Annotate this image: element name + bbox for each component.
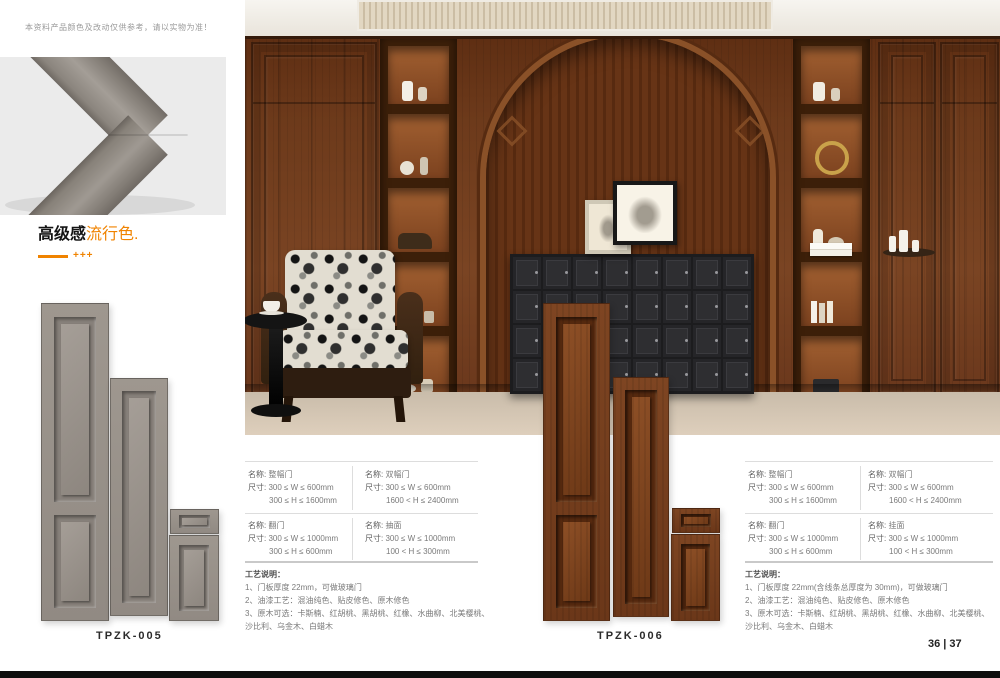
door-panel-center	[61, 522, 89, 601]
door-panel-center	[684, 517, 708, 524]
cabinet-door	[663, 291, 691, 323]
cabinet-door	[693, 257, 721, 289]
cabinet-door	[693, 359, 721, 391]
spec-name: 双幅门	[888, 470, 912, 479]
accent-underline: +++	[38, 252, 94, 260]
spec-cell: 名称: 双幅门 尺寸: 300 ≤ W ≤ 600mm 1600 < H ≤ 2…	[365, 468, 459, 507]
divider	[245, 461, 478, 462]
page-title: 高级感流行色.	[38, 226, 138, 244]
room-photo	[245, 0, 1000, 435]
gray-door-tall	[41, 303, 109, 621]
ceiling-slat-panel	[357, 0, 773, 31]
cabinet-door	[603, 257, 631, 289]
spec-cell: 名称: 翻门 尺寸: 300 ≤ W ≤ 1000mm 300 ≤ H ≤ 60…	[748, 519, 838, 558]
spec-size: 300 ≤ W ≤ 600mm	[268, 483, 333, 492]
process-note: 3、原木可选：卡斯楠、红胡桃、黑胡桃、红橡、水曲柳、北美樱桃、沙比利、乌金木、白…	[245, 607, 490, 633]
cabinet-door	[633, 325, 661, 357]
decor-book	[819, 303, 825, 323]
spec-name: 挂面	[888, 521, 904, 530]
armchair-seat-cushion	[278, 330, 408, 370]
process-note: 1、门板厚度 22mm，可做玻璃门	[245, 581, 490, 594]
corner-frame-render	[0, 57, 226, 215]
door-panel-center	[563, 522, 590, 601]
corner-detail-image	[0, 57, 226, 215]
divider	[745, 561, 993, 563]
divider	[352, 518, 353, 560]
cabinet-door	[513, 291, 541, 323]
shelf-opening	[388, 188, 449, 252]
spec-size: 300 ≤ H ≤ 600mm	[748, 545, 838, 558]
shelf-opening	[801, 262, 862, 326]
cabinet-door	[723, 257, 751, 289]
divider	[352, 466, 353, 510]
process-notes: 工艺说明： 1、门板厚度 22mm，可做玻璃门 2、油漆工艺：混油纯色、贴皮修色…	[245, 568, 490, 633]
decor-book	[811, 301, 817, 323]
process-notes-title: 工艺说明：	[245, 568, 490, 581]
decor-vase	[402, 81, 413, 101]
cabinet-door	[723, 359, 751, 391]
cabinet-door	[723, 291, 751, 323]
divider	[245, 513, 478, 514]
spec-cell: 名称: 双幅门 尺寸: 300 ≤ W ≤ 600mm 1600 < H ≤ 2…	[868, 468, 962, 507]
catalog-page: 本资料产品颜色及改动仅供参考，请以实物为准！ 高级	[0, 0, 1000, 678]
door-panel	[54, 317, 96, 502]
door-panel-center	[182, 518, 207, 525]
spec-size: 300 ≤ W ≤ 1000mm	[385, 534, 455, 543]
ceiling	[245, 0, 1000, 39]
shelf-opening	[388, 46, 449, 104]
cabinet-door	[513, 359, 541, 391]
spec-size: 300 ≤ W ≤ 1000mm	[888, 534, 958, 543]
cabinet-door	[723, 325, 751, 357]
door-panel	[625, 390, 657, 604]
spec-size: 1600 < H ≤ 2400mm	[365, 494, 459, 507]
decor-sphere	[400, 161, 414, 175]
process-notes-title: 工艺说明：	[745, 568, 997, 581]
door-panel	[681, 544, 710, 611]
spec-cell: 名称: 挂面 尺寸: 300 ≤ W ≤ 1000mm 100 < H ≤ 30…	[868, 519, 958, 558]
divider	[860, 466, 861, 510]
divider	[745, 461, 993, 462]
side-table-column	[269, 324, 283, 410]
spec-cell: 名称: 翻门 尺寸: 300 ≤ W ≤ 1000mm 300 ≤ H ≤ 60…	[248, 519, 338, 558]
cabinet-door	[633, 257, 661, 289]
divider	[245, 561, 478, 563]
cabinet-door	[663, 257, 691, 289]
door-panel	[179, 515, 210, 528]
door-panel	[122, 391, 156, 603]
shelf-column-right	[793, 36, 870, 396]
door-panel	[556, 515, 597, 608]
process-note: 2、油漆工艺：混油纯色、贴皮修色、原木修色	[745, 594, 997, 607]
door-panel	[681, 514, 711, 527]
door-panel-center	[129, 398, 149, 596]
cabinet-door	[573, 257, 601, 289]
bottom-bar	[0, 671, 1000, 678]
decor-candle	[889, 236, 896, 252]
spec-cell: 名称: 整幅门 尺寸: 300 ≤ W ≤ 600mm 300 ≤ H ≤ 16…	[248, 468, 337, 507]
spec-size: 300 ≤ H ≤ 1600mm	[248, 494, 337, 507]
wood-door-small	[671, 534, 720, 621]
page-title-orange: 流行色	[86, 226, 134, 243]
gray-door-small	[169, 535, 219, 621]
shelf-opening	[388, 114, 449, 178]
cabinet-door	[513, 257, 541, 289]
cabinet-door	[543, 257, 571, 289]
decor-books-stack	[810, 243, 852, 256]
process-note: 1、门板厚度 22mm(含线条总厚度为 30mm)，可做玻璃门	[745, 581, 997, 594]
decor-vase	[831, 88, 840, 101]
spec-size: 100 < H ≤ 300mm	[868, 545, 958, 558]
decor-horse-figurine	[398, 233, 432, 249]
cabinet-door	[663, 325, 691, 357]
door-panel-center	[184, 550, 204, 606]
spec-size: 300 ≤ W ≤ 600mm	[888, 483, 953, 492]
shelf-opening	[801, 46, 862, 104]
cabinet-door	[513, 325, 541, 357]
spec-size: 1600 < H ≤ 2400mm	[868, 494, 962, 507]
door-panel-center	[686, 549, 705, 606]
spec-size: 300 ≤ H ≤ 1600mm	[748, 494, 837, 507]
spec-name: 翻门	[268, 521, 284, 530]
spec-name: 整幅门	[768, 470, 792, 479]
cabinet-door	[693, 325, 721, 357]
spec-name: 翻门	[768, 521, 784, 530]
accent-line	[38, 255, 68, 258]
divider	[860, 518, 861, 560]
spec-size: 300 ≤ W ≤ 600mm	[385, 483, 450, 492]
right-wardrobe-door-1	[878, 42, 936, 394]
spec-size: 300 ≤ W ≤ 600mm	[768, 483, 833, 492]
wood-door-medium	[613, 377, 669, 617]
process-note: 3、原木可选：卡斯楠、红胡桃、黑胡桃、红橡、水曲柳、北美樱桃、沙比利、乌金木、白…	[745, 607, 997, 633]
decor-bottle	[420, 157, 428, 175]
artwork-sketch	[625, 193, 665, 233]
spec-size: 300 ≤ W ≤ 1000mm	[268, 534, 338, 543]
door-panel	[556, 317, 597, 502]
decor-vase	[813, 82, 825, 101]
decor-saucer	[259, 311, 284, 315]
page-title-black: 高级感	[38, 226, 86, 243]
process-note: 2、油漆工艺：混油纯色、贴皮修色、原木修色	[245, 594, 490, 607]
door-panel-center	[61, 324, 89, 495]
decor-vase	[418, 87, 427, 101]
wood-drawer-front	[672, 508, 720, 533]
spec-cell: 名称: 抽面 尺寸: 300 ≤ W ≤ 1000mm 100 < H ≤ 30…	[365, 519, 455, 558]
product-code-tpzk-006: TPZK-006	[597, 630, 664, 642]
divider	[745, 513, 993, 514]
decor-gold-ring	[815, 141, 849, 175]
wood-door-tall	[543, 303, 610, 621]
decor-candle	[912, 240, 919, 252]
accent-plus-marks: +++	[73, 252, 94, 260]
process-notes: 工艺说明： 1、门板厚度 22mm(含线条总厚度为 30mm)，可做玻璃门 2、…	[745, 568, 997, 633]
framed-artwork-large	[613, 181, 677, 245]
cabinet-door	[693, 291, 721, 323]
door-panel-center	[632, 397, 650, 597]
spec-name: 抽面	[385, 521, 401, 530]
spec-name: 整幅门	[268, 470, 292, 479]
gray-door-medium	[110, 378, 168, 616]
door-panel-center	[563, 324, 590, 495]
spec-cell: 名称: 整幅门 尺寸: 300 ≤ W ≤ 600mm 300 ≤ H ≤ 16…	[748, 468, 837, 507]
disclaimer-text: 本资料产品颜色及改动仅供参考，请以实物为准！	[25, 22, 212, 33]
right-wardrobe-door-2	[940, 42, 999, 394]
shelf-opening	[801, 114, 862, 178]
door-panel	[179, 545, 209, 611]
spec-size: 300 ≤ W ≤ 1000mm	[768, 534, 838, 543]
spec-size: 300 ≤ H ≤ 600mm	[248, 545, 338, 558]
decor-box	[424, 311, 434, 323]
decor-candle	[899, 230, 908, 252]
decor-book	[827, 301, 833, 323]
cabinet-door	[633, 291, 661, 323]
side-table-base	[251, 404, 301, 417]
spec-name: 双幅门	[385, 470, 409, 479]
gray-drawer-front	[170, 509, 219, 534]
door-panel	[54, 515, 96, 608]
product-code-tpzk-005: TPZK-005	[96, 630, 163, 642]
armchair-base	[275, 368, 411, 398]
page-number: 36 | 37	[928, 638, 962, 650]
spec-size: 100 < H ≤ 300mm	[365, 545, 455, 558]
